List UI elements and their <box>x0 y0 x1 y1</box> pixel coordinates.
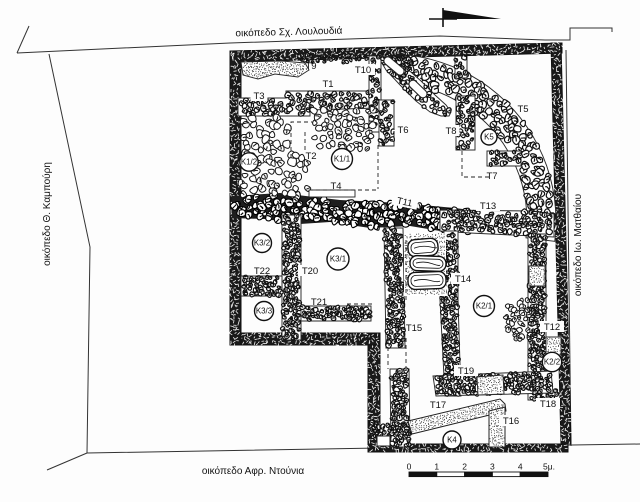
svg-text:T22: T22 <box>254 266 270 277</box>
svg-text:T9: T9 <box>305 61 316 72</box>
svg-text:Κ2/2: Κ2/2 <box>544 358 560 367</box>
svg-text:1: 1 <box>434 462 439 472</box>
svg-text:Κ3/2: Κ3/2 <box>254 239 270 248</box>
svg-text:T21: T21 <box>311 297 327 308</box>
svg-text:T1: T1 <box>322 79 333 90</box>
svg-text:3: 3 <box>490 462 495 472</box>
svg-text:5μ.: 5μ. <box>543 462 555 472</box>
svg-text:Κ1/1: Κ1/1 <box>334 155 350 164</box>
svg-text:T12: T12 <box>544 322 560 333</box>
svg-text:T4: T4 <box>330 181 341 192</box>
svg-text:T3: T3 <box>253 91 264 102</box>
svg-text:T7: T7 <box>486 171 497 182</box>
svg-text:Κ3/3: Κ3/3 <box>256 307 273 316</box>
svg-text:0: 0 <box>407 462 412 472</box>
svg-text:Κ4: Κ4 <box>447 436 457 445</box>
svg-text:T19: T19 <box>458 366 474 377</box>
svg-text:Κ3/1: Κ3/1 <box>330 255 346 264</box>
svg-text:Κ5: Κ5 <box>484 133 494 142</box>
svg-text:T13: T13 <box>480 201 496 212</box>
svg-text:2: 2 <box>462 462 467 472</box>
svg-text:οικόπεδο Αφρ. Ντούνια: οικόπεδο Αφρ. Ντούνια <box>202 465 304 477</box>
svg-text:οικόπεδο Θ. Καμπούρη: οικόπεδο Θ. Καμπούρη <box>41 162 53 266</box>
svg-text:T17: T17 <box>430 400 446 411</box>
svg-text:T2: T2 <box>305 151 316 162</box>
svg-text:T20: T20 <box>302 266 318 277</box>
svg-text:T6: T6 <box>397 125 408 136</box>
svg-text:T18: T18 <box>540 399 556 410</box>
svg-text:4: 4 <box>518 462 523 472</box>
svg-text:οικόπεδο Ιω. Ματθαίου: οικόπεδο Ιω. Ματθαίου <box>572 194 584 296</box>
svg-text:T10: T10 <box>355 65 371 76</box>
svg-text:Κ2/1: Κ2/1 <box>476 302 492 311</box>
svg-text:Κ1/2: Κ1/2 <box>241 158 257 167</box>
svg-text:T16: T16 <box>503 416 519 427</box>
svg-text:T14: T14 <box>455 274 471 285</box>
svg-text:T8: T8 <box>445 126 456 137</box>
svg-text:T15: T15 <box>406 323 422 334</box>
svg-text:T5: T5 <box>517 104 528 115</box>
